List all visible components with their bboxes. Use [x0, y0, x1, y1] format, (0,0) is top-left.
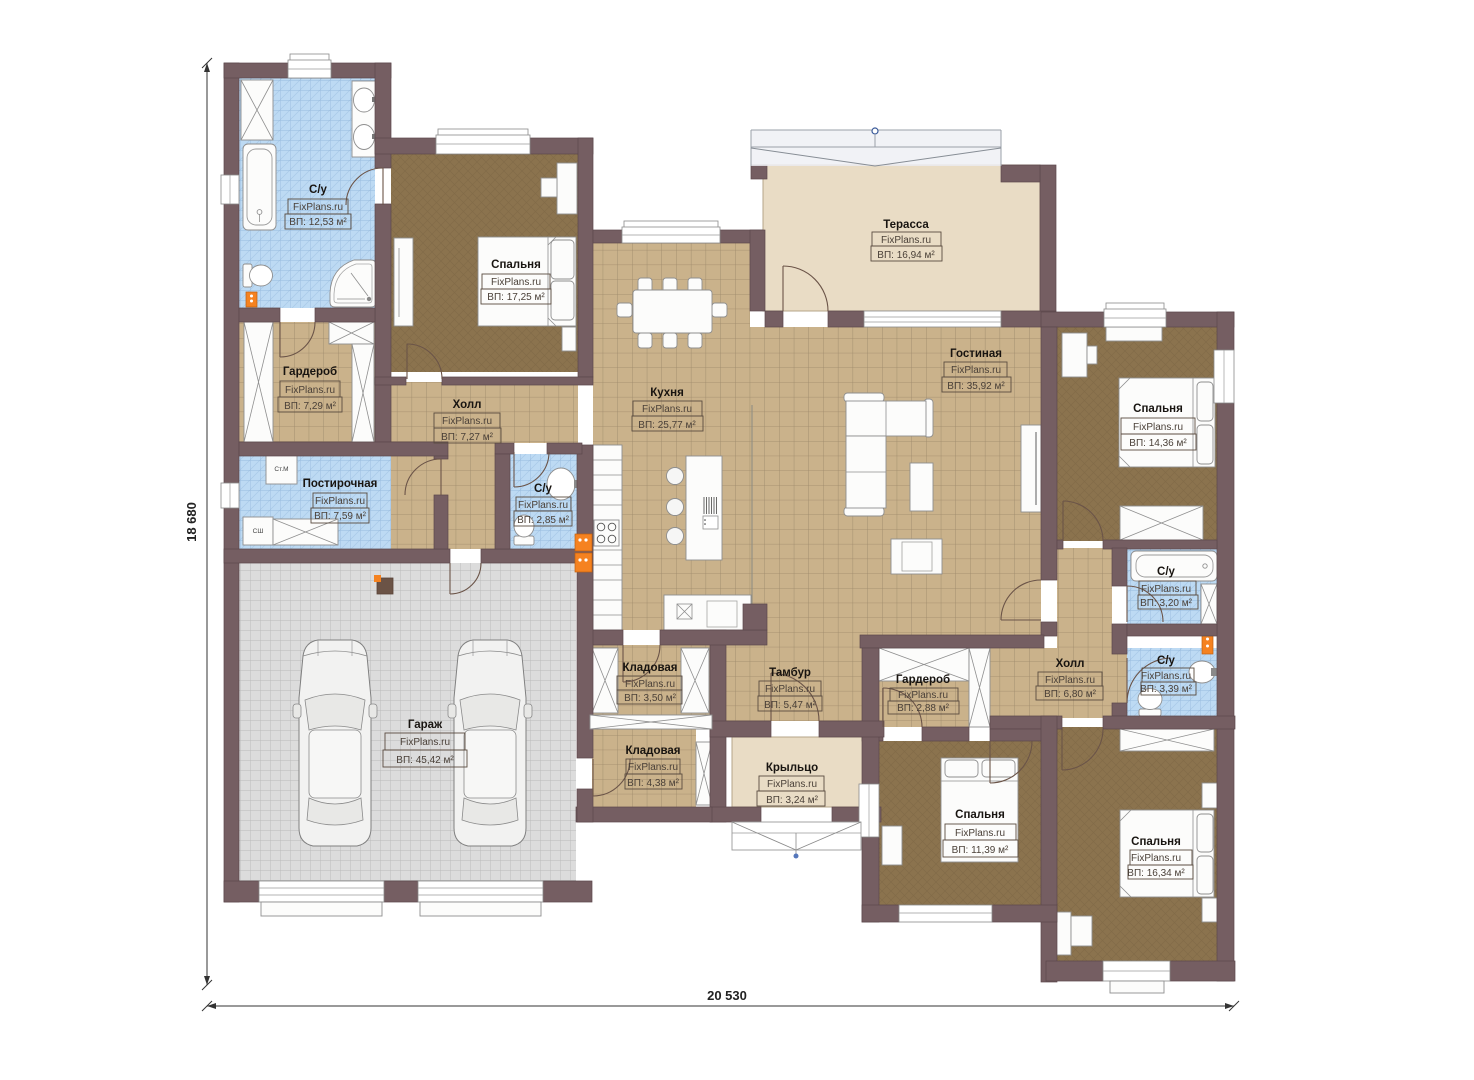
svg-text:Холл: Холл: [453, 399, 482, 411]
svg-text:FixPlans.ru: FixPlans.ru: [400, 737, 450, 748]
svg-text:ВП: 14,36 м²: ВП: 14,36 м²: [1129, 438, 1187, 449]
svg-text:FixPlans.ru: FixPlans.ru: [628, 762, 678, 773]
svg-text:FixPlans.ru: FixPlans.ru: [491, 277, 541, 288]
svg-text:ВП: 7,29 м²: ВП: 7,29 м²: [284, 401, 337, 412]
svg-text:FixPlans.ru: FixPlans.ru: [518, 500, 568, 511]
svg-text:ВП: 16,34 м²: ВП: 16,34 м²: [1127, 868, 1185, 879]
svg-text:ВП: 3,39 м²: ВП: 3,39 м²: [1140, 684, 1193, 695]
svg-text:FixPlans.ru: FixPlans.ru: [442, 416, 492, 427]
svg-text:ВП: 11,39 м²: ВП: 11,39 м²: [952, 845, 1009, 856]
svg-text:Спальня: Спальня: [491, 259, 541, 271]
svg-text:ВП: 45,42 м²: ВП: 45,42 м²: [396, 755, 454, 766]
svg-text:С/у: С/у: [309, 184, 328, 196]
svg-text:18 680: 18 680: [184, 502, 199, 542]
svg-text:FixPlans.ru: FixPlans.ru: [642, 404, 692, 415]
svg-text:Кладовая: Кладовая: [625, 745, 680, 757]
svg-text:ВП: 5,47 м²: ВП: 5,47 м²: [764, 700, 817, 711]
svg-text:ВП: 17,25 м²: ВП: 17,25 м²: [487, 292, 545, 303]
svg-text:FixPlans.ru: FixPlans.ru: [285, 385, 335, 396]
svg-text:FixPlans.ru: FixPlans.ru: [1133, 422, 1183, 433]
svg-text:С/у: С/у: [1157, 655, 1176, 667]
svg-text:Кладовая: Кладовая: [622, 662, 677, 674]
svg-text:СШ: СШ: [253, 528, 264, 535]
svg-text:FixPlans.ru: FixPlans.ru: [1131, 853, 1181, 864]
svg-text:С/у: С/у: [534, 483, 553, 495]
svg-text:ВП: 2,85 м²: ВП: 2,85 м²: [517, 515, 570, 526]
svg-text:FixPlans.ru: FixPlans.ru: [765, 684, 815, 695]
svg-text:ВП: 4,38 м²: ВП: 4,38 м²: [627, 778, 680, 789]
svg-text:FixPlans.ru: FixPlans.ru: [881, 235, 931, 246]
svg-text:ВП: 25,77 м²: ВП: 25,77 м²: [638, 420, 696, 431]
svg-text:FixPlans.ru: FixPlans.ru: [1141, 584, 1191, 595]
svg-text:ВП: 7,27 м²: ВП: 7,27 м²: [441, 432, 494, 443]
svg-text:ВП: 6,80 м²: ВП: 6,80 м²: [1044, 689, 1097, 700]
svg-text:ВП: 12,53 м²: ВП: 12,53 м²: [289, 217, 347, 228]
svg-text:FixPlans.ru: FixPlans.ru: [898, 690, 948, 701]
svg-text:ВП: 3,24 м²: ВП: 3,24 м²: [766, 795, 819, 806]
svg-text:Спальня: Спальня: [955, 809, 1005, 821]
svg-text:FixPlans.ru: FixPlans.ru: [315, 496, 365, 507]
svg-text:Терасса: Терасса: [883, 219, 929, 231]
svg-text:FixPlans.ru: FixPlans.ru: [293, 202, 343, 213]
svg-text:FixPlans.ru: FixPlans.ru: [767, 779, 817, 790]
svg-text:ВП: 2,88 м²: ВП: 2,88 м²: [897, 703, 950, 714]
svg-text:Кухня: Кухня: [650, 387, 684, 399]
svg-text:Гардероб: Гардероб: [283, 366, 337, 378]
svg-text:ВП: 3,50 м²: ВП: 3,50 м²: [624, 693, 677, 704]
svg-text:Гостиная: Гостиная: [950, 348, 1002, 360]
svg-text:Холл: Холл: [1056, 658, 1085, 670]
svg-text:Крыльцо: Крыльцо: [766, 762, 818, 774]
svg-text:FixPlans.ru: FixPlans.ru: [955, 828, 1005, 839]
svg-text:Постирочная: Постирочная: [303, 478, 378, 490]
svg-text:20 530: 20 530: [707, 988, 747, 1003]
svg-text:Гараж: Гараж: [408, 719, 443, 731]
svg-text:FixPlans.ru: FixPlans.ru: [625, 679, 675, 690]
svg-text:FixPlans.ru: FixPlans.ru: [951, 365, 1001, 376]
svg-text:Спальня: Спальня: [1133, 403, 1183, 415]
svg-text:С/у: С/у: [1157, 566, 1176, 578]
svg-text:Гардероб: Гардероб: [896, 674, 950, 686]
svg-text:ВП: 35,92 м²: ВП: 35,92 м²: [947, 381, 1005, 392]
svg-text:ВП: 16,94 м²: ВП: 16,94 м²: [877, 250, 935, 261]
svg-text:Тамбур: Тамбур: [769, 667, 811, 679]
svg-text:ВП: 3,20 м²: ВП: 3,20 м²: [1140, 598, 1193, 609]
svg-text:Ст.М: Ст.М: [274, 466, 288, 473]
svg-text:FixPlans.ru: FixPlans.ru: [1045, 675, 1095, 686]
svg-text:Спальня: Спальня: [1131, 836, 1181, 848]
svg-text:FixPlans.ru: FixPlans.ru: [1141, 671, 1191, 682]
svg-text:ВП: 7,59 м²: ВП: 7,59 м²: [314, 511, 367, 522]
